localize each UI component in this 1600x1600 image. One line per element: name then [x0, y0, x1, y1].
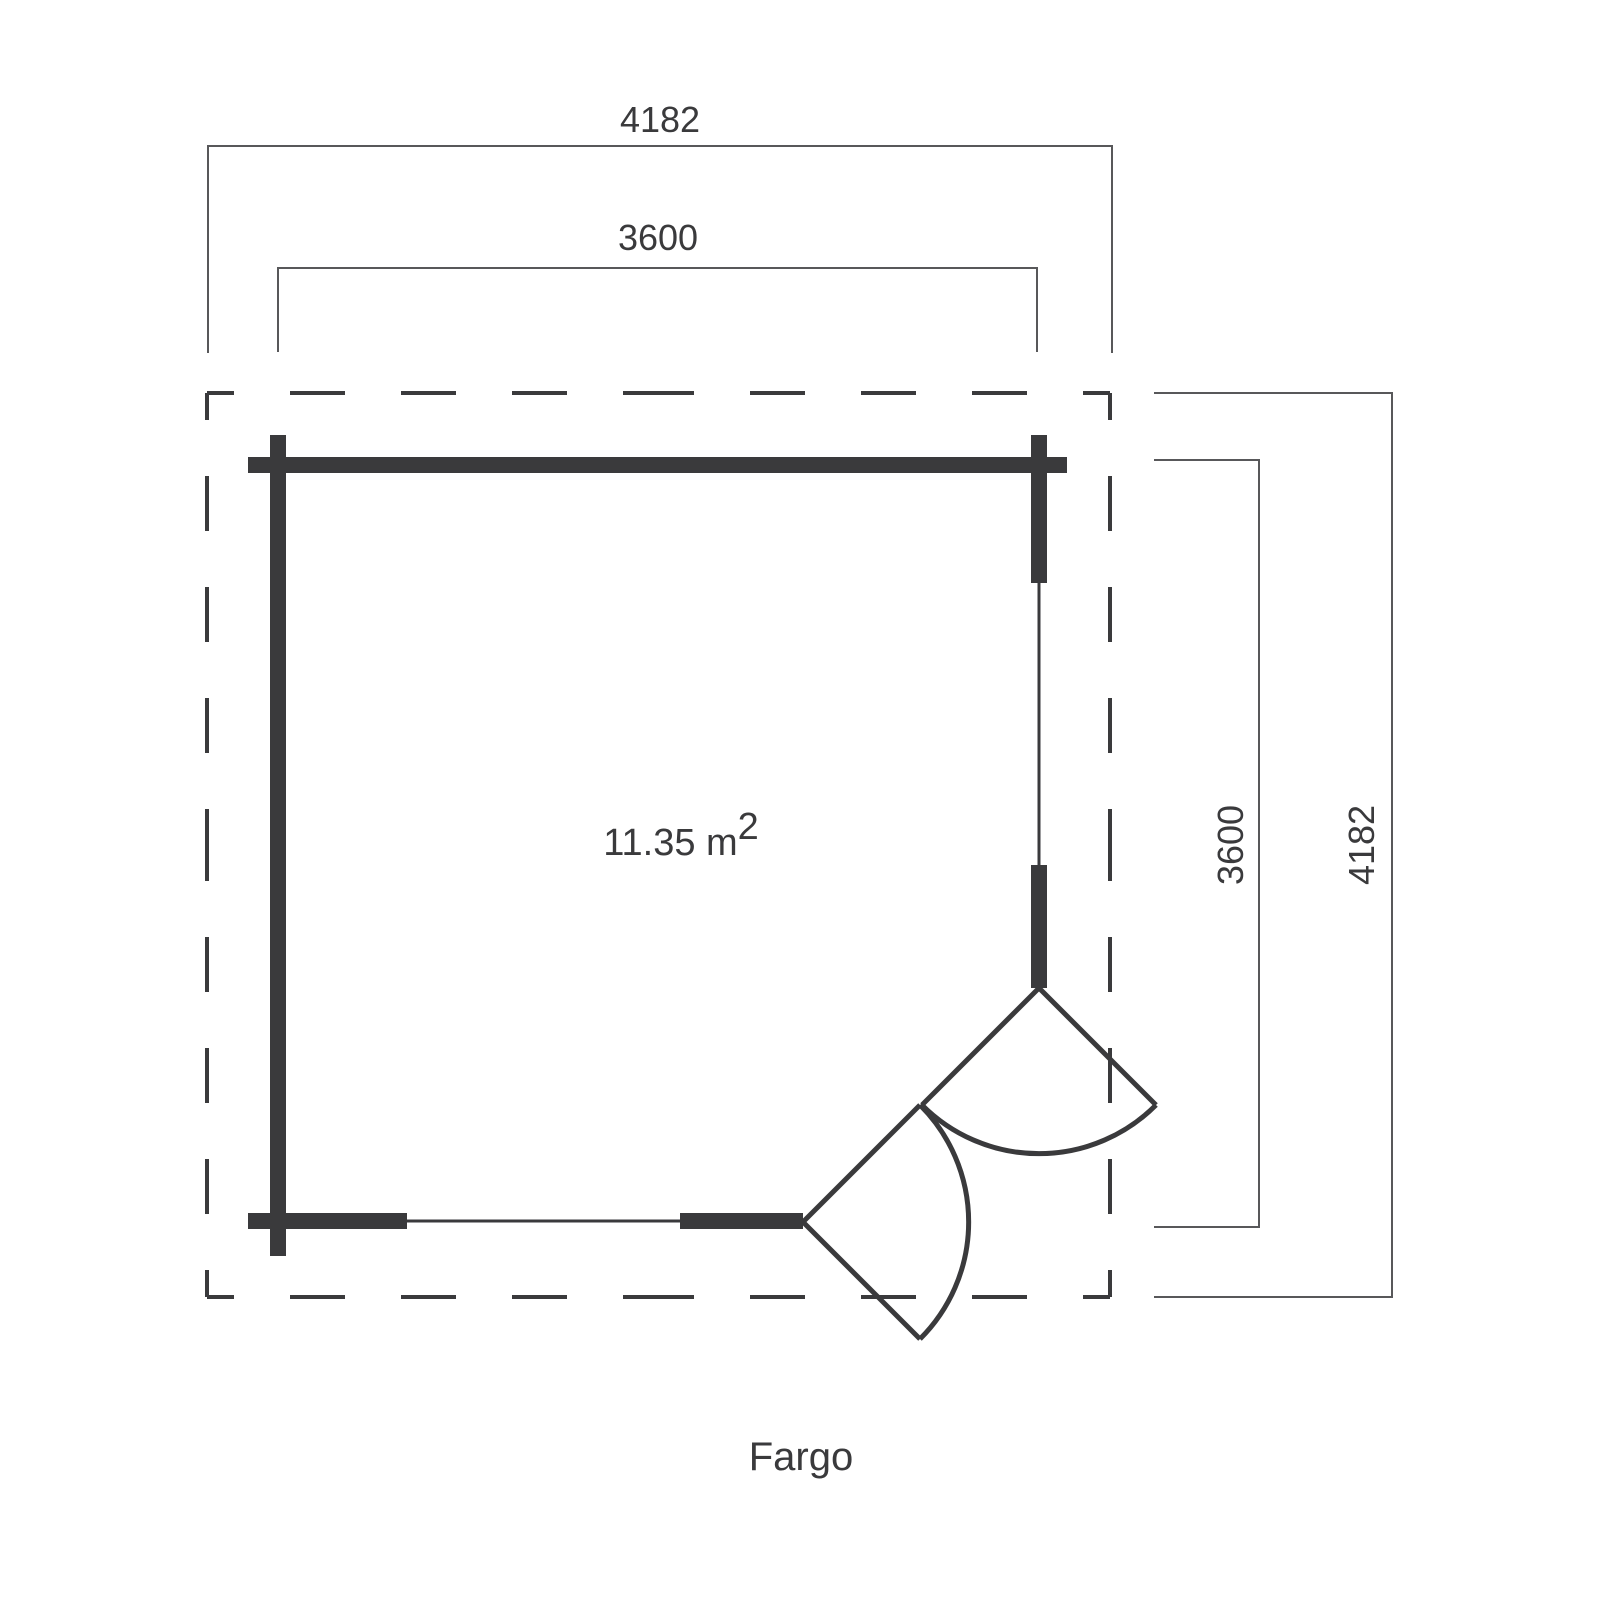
floor-area-label: 11.35 m2 [603, 806, 759, 864]
wall-left-log [270, 435, 286, 1256]
door-swing-arc-bottom-leaf [920, 1105, 969, 1339]
dimension-label-right-inner: 3600 [1210, 805, 1251, 885]
corner-double-door [803, 988, 1156, 1339]
dimension-label-top-outer: 4182 [620, 99, 700, 140]
floor-plan-drawing: 4182 3600 3600 4182 11.35 m2 Fargo [0, 0, 1600, 1600]
wall-right-door-jamb [1031, 865, 1047, 988]
door-leaf-right-position-a [922, 988, 1039, 1105]
wall-bottom-left-log [248, 1213, 407, 1229]
dimension-label-right-outer: 4182 [1341, 805, 1382, 885]
floor-plan-sheet: 4182 3600 3600 4182 11.35 m2 Fargo [0, 0, 1600, 1600]
wall-top-log [248, 457, 1067, 473]
door-leaf-right-position-b [1039, 988, 1156, 1105]
dimension-lines [208, 146, 1392, 1297]
floor-area-superscript: 2 [738, 806, 759, 848]
door-swing-arc-right-leaf [922, 1105, 1156, 1154]
dimension-label-top-inner: 3600 [618, 217, 698, 258]
dimension-label-right-outer-group: 4182 [1341, 805, 1382, 885]
wall-bottom-door-jamb [680, 1213, 803, 1229]
plan-title: Fargo [749, 1435, 854, 1479]
door-leaf-bottom-position-b [803, 1222, 920, 1339]
floor-area-value: 11.35 m [603, 822, 737, 864]
corner-post-top-right [1031, 435, 1047, 583]
dimension-label-right-inner-group: 3600 [1210, 805, 1251, 885]
dimension-bracket-top-inner [278, 268, 1037, 352]
door-leaf-bottom-position-a [803, 1105, 920, 1222]
